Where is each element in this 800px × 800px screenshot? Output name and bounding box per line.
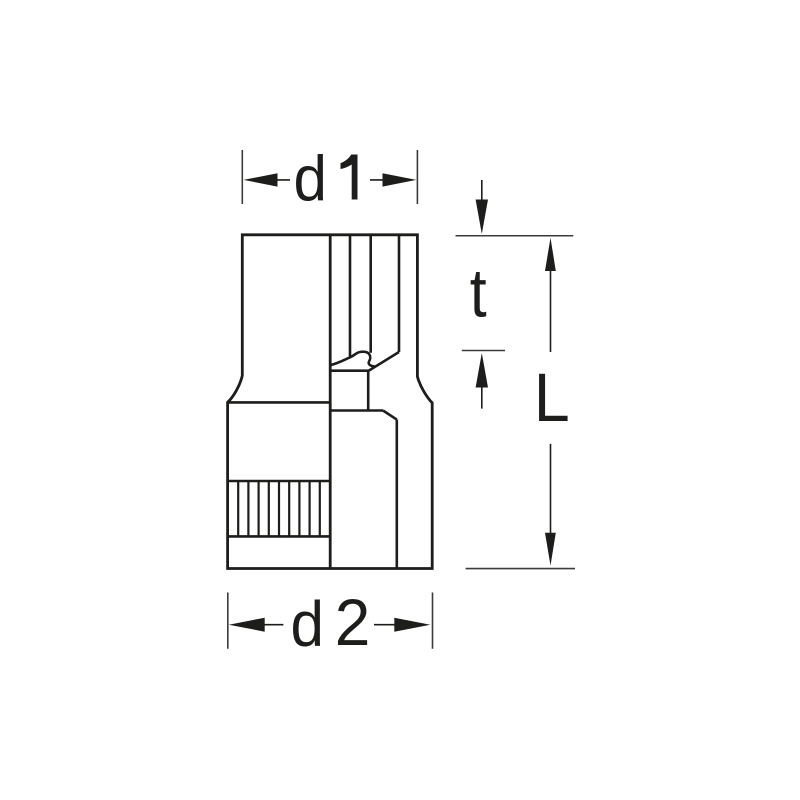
svg-text:2: 2	[335, 585, 371, 659]
svg-text:d: d	[294, 144, 327, 215]
svg-text:t: t	[470, 254, 487, 331]
svg-text:L: L	[534, 360, 570, 436]
svg-text:d: d	[291, 589, 324, 660]
